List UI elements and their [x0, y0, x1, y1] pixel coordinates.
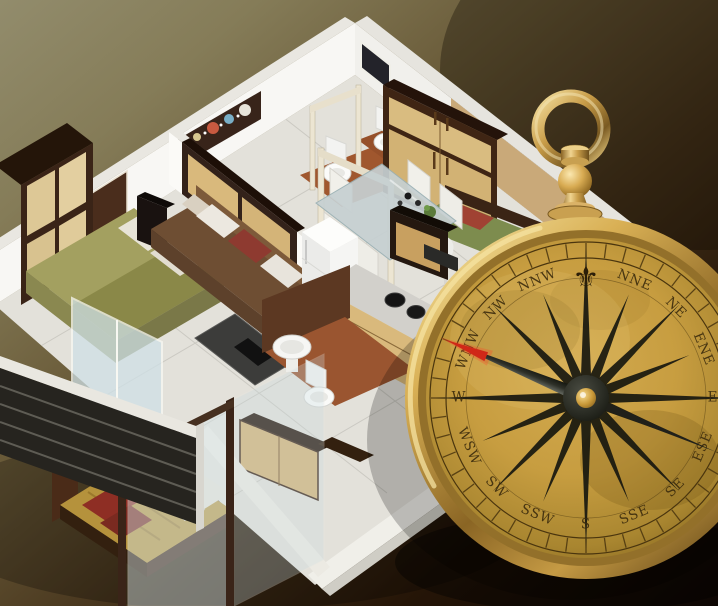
fleur-de-lis-glyph: ⚜ [573, 261, 600, 296]
railing-end-post [196, 422, 204, 532]
north-fleur-icon: ⚜ [573, 261, 600, 296]
glass-frame-post-2 [226, 397, 234, 606]
scene: NNENEENEEESESESSESSSWSWWSWWWNWNWNNW ⚜ [0, 0, 718, 606]
compass-label-S: S [581, 517, 591, 533]
compass-label-W: W [452, 390, 467, 406]
stove-burner-1 [385, 293, 405, 307]
compass-label-E: E [708, 390, 718, 406]
handle-knob [558, 164, 592, 198]
stove-burner-2 [407, 306, 425, 319]
bathroom-frame-post-1 [310, 106, 315, 190]
hub-brass-pin [576, 388, 596, 408]
bathroom-frame-post-2 [356, 85, 361, 169]
scene-svg: NNENEENEEESESESSESSSWSWWSWWWNWNWNNW ⚜ [0, 0, 718, 606]
